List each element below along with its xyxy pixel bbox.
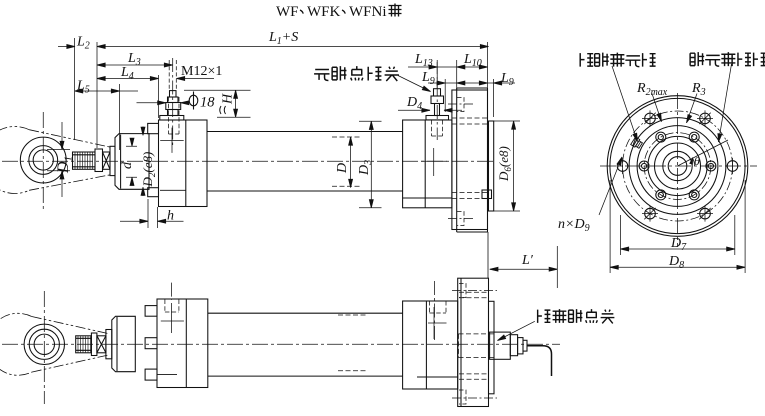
svg-text:18: 18 bbox=[200, 95, 215, 111]
svg-text:θ: θ bbox=[694, 154, 700, 168]
svg-text:H: H bbox=[221, 93, 236, 105]
svg-text:WFK: WFK bbox=[307, 4, 341, 20]
svg-text:h: h bbox=[167, 209, 174, 224]
svg-text:L′: L′ bbox=[521, 253, 534, 268]
svg-text:M12×1: M12×1 bbox=[181, 64, 222, 79]
svg-text:L1+S: L1+S bbox=[268, 30, 298, 47]
svg-text:D6(e8): D6(e8) bbox=[496, 146, 513, 182]
svg-text:WF: WF bbox=[276, 4, 299, 20]
svg-text:WFNi: WFNi bbox=[349, 4, 387, 20]
svg-text:D2(e8): D2(e8) bbox=[140, 152, 157, 188]
svg-text:D: D bbox=[335, 163, 350, 174]
svg-text:d: d bbox=[120, 161, 135, 169]
